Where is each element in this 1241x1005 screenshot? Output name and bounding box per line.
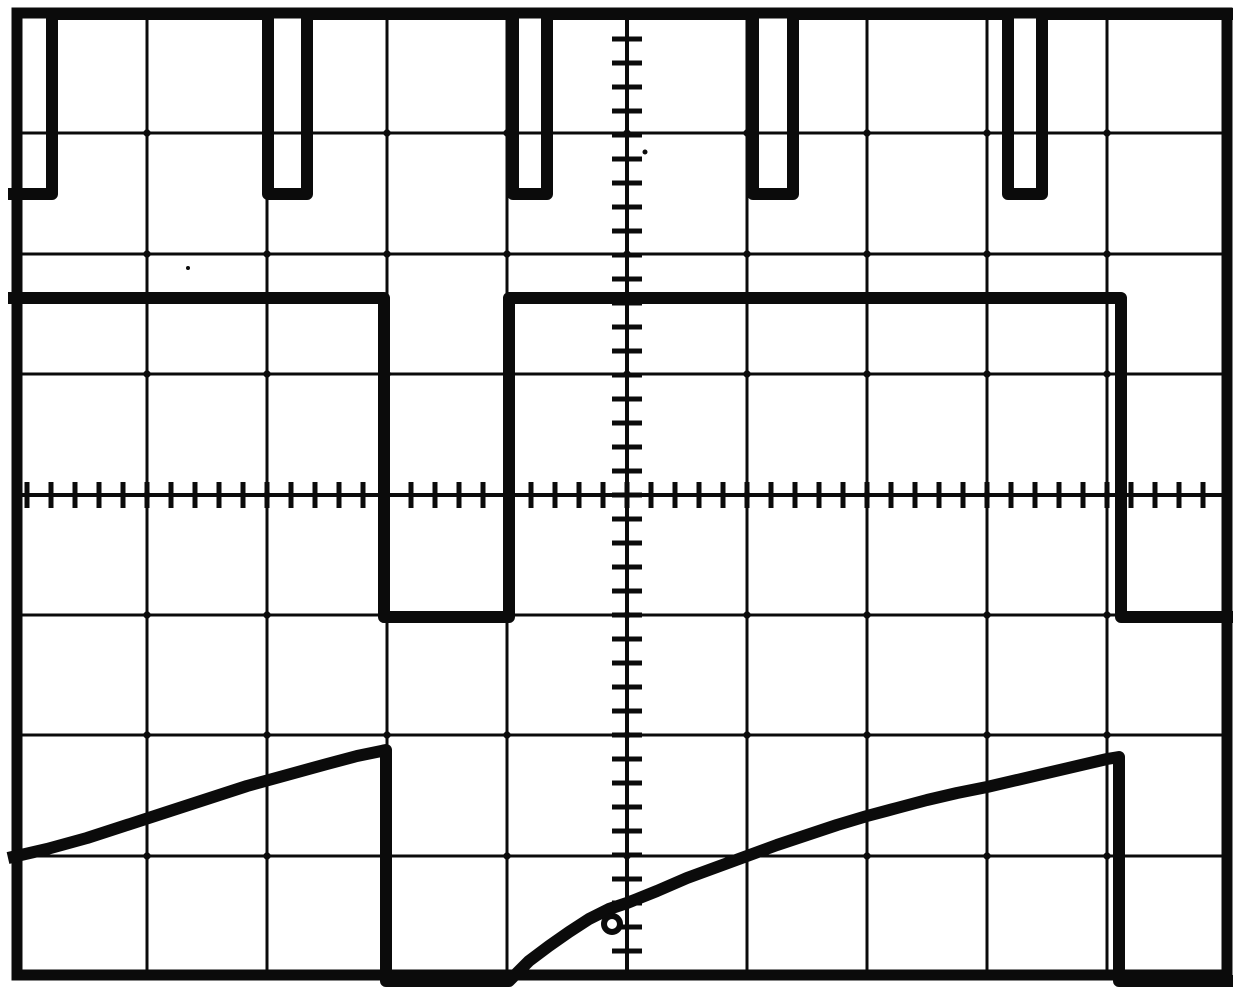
loop-artifact — [604, 916, 620, 932]
ink-speck — [643, 150, 648, 155]
oscilloscope-screen — [0, 0, 1241, 1005]
oscilloscope-figure — [0, 0, 1241, 1005]
ink-speck — [186, 266, 190, 270]
